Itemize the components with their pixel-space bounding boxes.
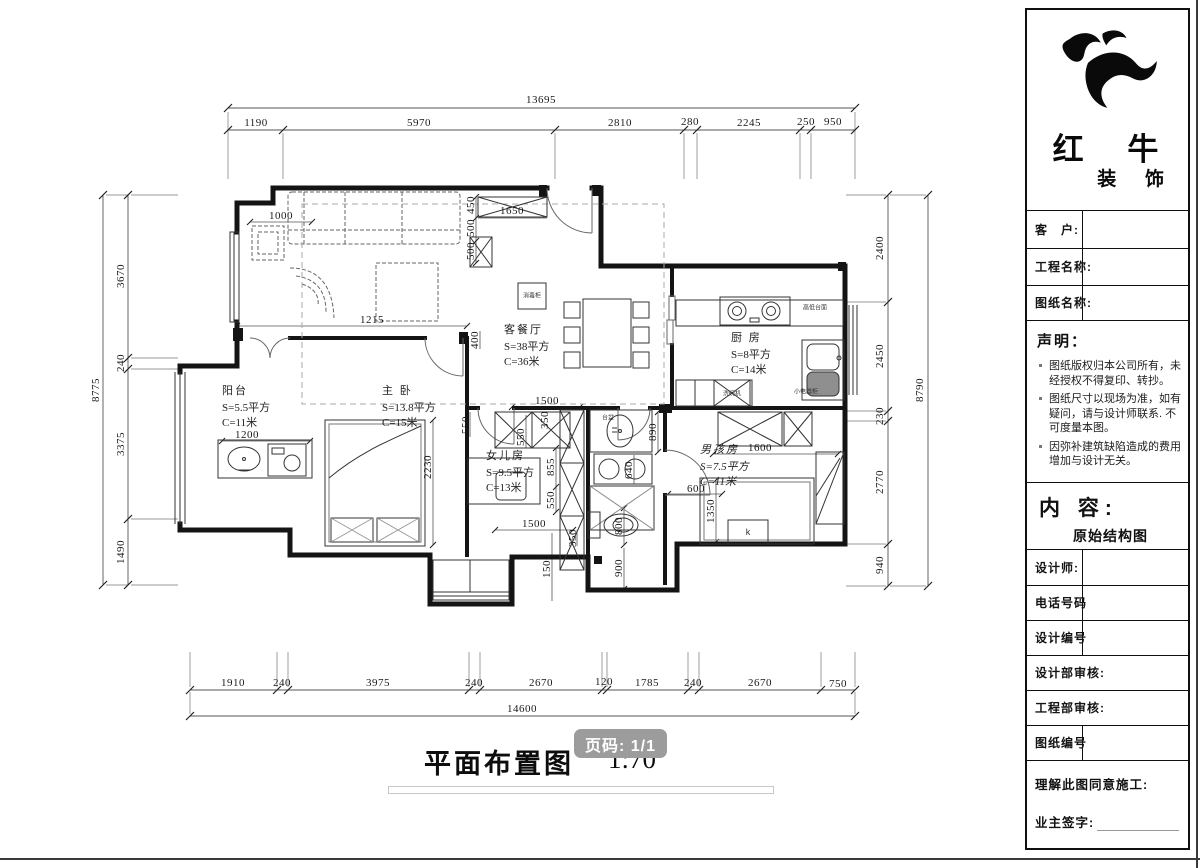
tb-row-label: 设计部审核: [1035, 664, 1105, 681]
dim-label: 1500 [522, 518, 546, 530]
room-label: 客餐厅 S=38平方 C=36米 [504, 323, 549, 370]
statement-list: 图纸版权归本公司所有，未经授权不得复印、转抄。图纸尺寸以现场为准，如有疑问，请与… [1037, 359, 1182, 469]
dim-label: 1500 [535, 395, 559, 407]
annotation-label: 小电器柜 [794, 387, 818, 396]
dim-label: 280 [681, 116, 699, 128]
dim-label: 1190 [244, 117, 268, 129]
dim-label: 500 [465, 242, 477, 260]
annotation-label: 台盆 [602, 413, 614, 422]
dim-label: 1910 [221, 677, 245, 689]
dim-label: 500 [465, 219, 477, 237]
dim-label: 3670 [115, 264, 127, 288]
room-label: 男孩房 S=7.5平方 C=11米 [700, 443, 749, 490]
dim-label: 240 [465, 677, 483, 689]
floor-plan [0, 0, 1010, 868]
tb-row: 图纸编号 [1027, 725, 1188, 760]
tb-footer: 理解此图同意施工: 业主签字: [1027, 760, 1188, 846]
dim-label: 2230 [422, 455, 434, 479]
tb-field-row: 工程名称: [1027, 248, 1188, 285]
dim-label: 855 [545, 458, 557, 476]
dim-label: 550 [515, 428, 527, 446]
dim-label: 450 [465, 196, 477, 214]
tb-row: 工程部审核: [1027, 690, 1188, 725]
master-bed [325, 420, 425, 546]
dim-label: 230 [874, 407, 886, 425]
signature-line[interactable] [1097, 830, 1179, 831]
dim-label: 2670 [529, 677, 553, 689]
dim-label: 3975 [366, 677, 390, 689]
dim-label: 240 [273, 677, 291, 689]
walls [180, 188, 845, 604]
floor-plan-drawing [0, 0, 1010, 868]
company-suffix: 装 饰 [1097, 164, 1176, 191]
title-underline-bar [388, 786, 774, 794]
balcony-fixtures [218, 440, 312, 478]
page-number-badge: 页码: 1/1 [574, 729, 667, 758]
plan-title: 平面布置图 [424, 742, 574, 781]
statement-item: 图纸版权归本公司所有，未经授权不得复印、转抄。 [1037, 359, 1182, 388]
tb-field-label: 图纸名称: [1035, 294, 1092, 311]
dim-label: 240 [115, 354, 127, 372]
dim-label: 2450 [874, 344, 886, 368]
dim-label: 8775 [90, 378, 102, 402]
sheet-border-right [1196, 0, 1198, 868]
tb-field-row: 图纸名称: [1027, 285, 1188, 320]
dim-label: 350 [567, 529, 579, 547]
tb-row-label: 设计编号 [1035, 629, 1087, 646]
footer-line2: 业主签字: [1035, 812, 1094, 831]
dim-label: 8790 [914, 378, 926, 402]
dim-label: 1650 [500, 205, 524, 217]
room-label: 阳台 S=5.5平方 C=11米 [222, 384, 270, 431]
tb-row: 设计编号 [1027, 620, 1188, 655]
room-label: 主 卧 S=13.8平方 C=15米 [382, 384, 436, 431]
tb-field-label: 客 户: [1035, 221, 1079, 238]
tb-row: 设计师: [1027, 549, 1188, 585]
dim-label: 750 [829, 678, 847, 690]
dim-label: 550 [460, 416, 472, 434]
dim-label: 1000 [269, 210, 293, 222]
dim-label: 1215 [360, 314, 384, 326]
tb-row: 电话号码 [1027, 585, 1188, 620]
dim-label: 1490 [115, 540, 127, 564]
dim-label: 5970 [407, 117, 431, 129]
content-section: 内 容: 原始结构图 [1027, 482, 1188, 549]
dim-label: 1785 [635, 677, 659, 689]
statement-title: 声明： [1037, 330, 1182, 351]
dim-label: 950 [824, 116, 842, 128]
dim-label: 550 [545, 491, 557, 509]
tb-row: 设计部审核: [1027, 655, 1188, 690]
annotation-label: 洗碗机 [723, 389, 741, 398]
dim-label: 2770 [874, 470, 886, 494]
sheet-border-bottom [0, 858, 1200, 860]
tb-row-label: 图纸编号 [1035, 734, 1087, 751]
footer-line1: 理解此图同意施工: [1035, 774, 1148, 793]
dim-label: 800 [613, 517, 625, 535]
dim-label: 250 [797, 116, 815, 128]
statement-item: 图纸尺寸以现场为准，如有疑问，请与设计师联系. 不可度量本图。 [1037, 392, 1182, 436]
drawing-sheet: 1369511905970281028022452509508775367024… [0, 0, 1200, 868]
annotation-label: 高低台面 [803, 303, 827, 312]
statement-item: 因弥补建筑缺陷造成的费用增加与设计无关。 [1037, 440, 1182, 469]
dim-label: 2400 [874, 236, 886, 260]
tb-field-row: 客 户: [1027, 210, 1188, 248]
dim-label: 2670 [748, 677, 772, 689]
dim-label: 13695 [526, 94, 556, 106]
content-value: 原始结构图 [1073, 526, 1148, 546]
tb-row-label: 设计师: [1035, 559, 1079, 576]
dim-label: 1350 [705, 499, 717, 523]
title-block: 红 牛 装 饰 客 户: 工程名称: 图纸名称: 声明： [1025, 8, 1190, 850]
dim-label: 400 [469, 331, 481, 349]
dim-label: 1600 [748, 442, 772, 454]
dim-label: 2245 [737, 117, 761, 129]
dim-label: 890 [647, 423, 659, 441]
annotation-label: k [746, 527, 751, 537]
dim-label: 640 [623, 461, 635, 479]
dim-label: 350 [539, 411, 551, 429]
dim-label: 120 [595, 676, 613, 688]
dim-label: 940 [874, 556, 886, 574]
dim-label: 14600 [507, 703, 537, 715]
bull-logo-icon [1055, 24, 1165, 120]
tb-row-label: 工程部审核: [1035, 699, 1105, 716]
logo-area: 红 牛 装 饰 [1027, 10, 1188, 210]
dim-label: 1500 [541, 554, 553, 578]
room-label: 女儿房 S=9.5平方 C=13米 [486, 449, 534, 496]
dim-label: 240 [684, 677, 702, 689]
tb-row-label: 电话号码 [1035, 594, 1087, 611]
company-name: 红 牛 [1027, 124, 1188, 169]
tb-field-label: 工程名称: [1035, 258, 1092, 275]
dim-label: 3375 [115, 432, 127, 456]
annotation-label: 消毒柜 [523, 291, 541, 300]
dim-label: 2810 [608, 117, 632, 129]
dim-label: 900 [613, 559, 625, 577]
content-label: 内 容: [1039, 492, 1118, 522]
statement-section: 声明： 图纸版权归本公司所有，未经授权不得复印、转抄。图纸尺寸以现场为准，如有疑… [1027, 320, 1188, 482]
room-label: 厨 房 S=8平方 C=14米 [731, 331, 771, 378]
